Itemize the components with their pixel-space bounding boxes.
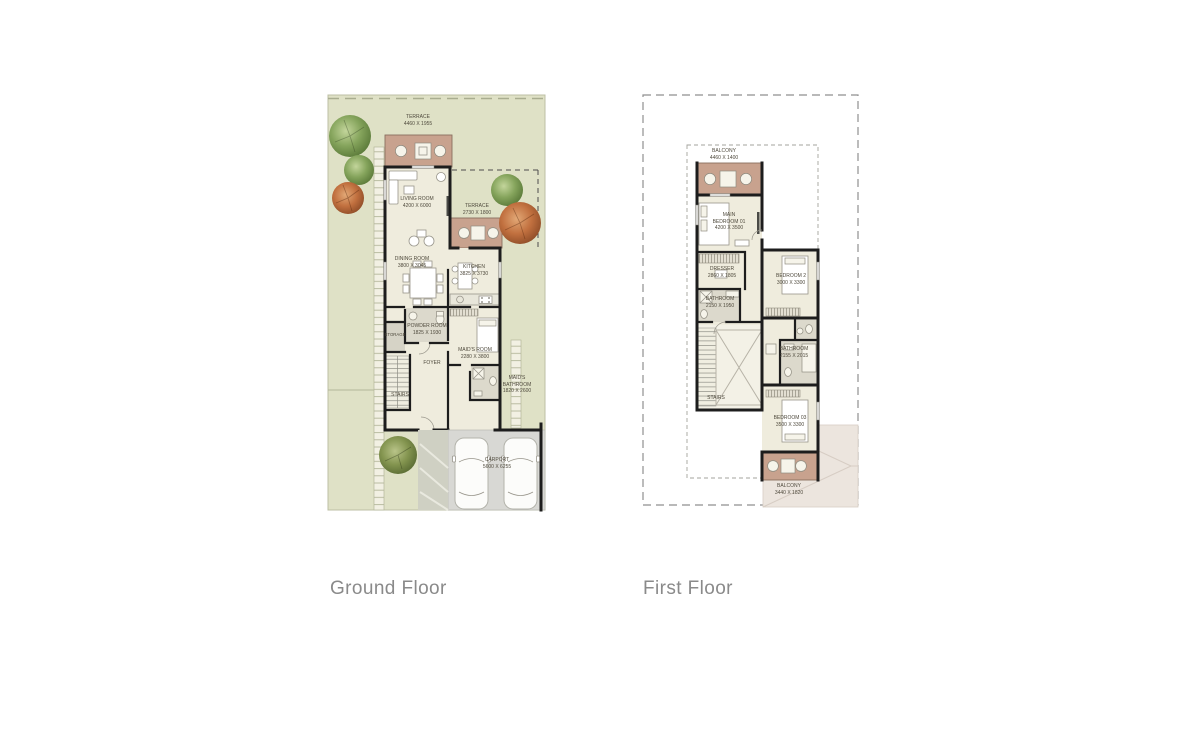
first-floor-caption: First Floor <box>643 578 733 600</box>
ground-floor-plan <box>328 95 545 510</box>
tree-icon <box>379 436 417 474</box>
room-label-balcony-top: BALCONY 4460 X 1400 <box>710 148 738 161</box>
room-name: TERRACE <box>463 203 491 210</box>
room-dims: 2280 X 3800 <box>458 354 492 361</box>
terrace-top <box>385 135 452 167</box>
ground-stairs <box>386 356 409 408</box>
tree-icon <box>329 115 371 157</box>
room-name: POWDER ROOM <box>407 323 446 330</box>
room-dims: 3800 X 3045 <box>395 263 429 270</box>
ground-floor-caption: Ground Floor <box>330 578 447 600</box>
room-dims: 2150 X 1950 <box>706 303 735 310</box>
balcony-bottom <box>762 452 818 480</box>
car-icon <box>502 438 540 509</box>
room-label-main-bedroom: MAIN BEDROOM 01 4200 X 3500 <box>713 212 746 232</box>
room-dims: 4460 X 1400 <box>710 155 738 162</box>
room-label-stairs-ground: STAIRS <box>391 392 409 399</box>
room-name: MAID'S ROOM <box>458 347 492 354</box>
room-dims: 4460 X 1955 <box>404 121 432 128</box>
first-floor-plan <box>643 95 858 507</box>
room-label-living-room: LIVING ROOM 4200 X 6000 <box>400 196 433 209</box>
room-dims: 2860 X 1805 <box>708 273 736 280</box>
carport <box>418 424 545 510</box>
room-name: STAIRS <box>391 392 409 399</box>
room-label-kitchen: KITCHEN 3825 X 3730 <box>460 264 488 277</box>
car-icon <box>453 438 491 509</box>
room-name: FOYER <box>423 360 440 367</box>
room-dims: 3825 X 3730 <box>460 271 488 278</box>
room-dims: 1820 X 2600 <box>502 388 532 395</box>
room-name: BATHROOM <box>780 346 809 353</box>
room-dims: 4200 X 6000 <box>400 203 433 210</box>
room-label-dining-room: DINING ROOM 3800 X 3045 <box>395 256 429 269</box>
room-dims: 4200 X 3500 <box>713 225 746 232</box>
room-dims: 2730 X 1800 <box>463 210 491 217</box>
room-name: BATHROOM <box>706 296 735 303</box>
room-name: TERRACE <box>404 114 432 121</box>
tree-icon <box>332 182 364 214</box>
room-label-stairs-first: STAIRS <box>707 395 725 402</box>
room-label-dresser: DRESSER 2860 X 1805 <box>708 266 736 279</box>
room-label-terrace-right: TERRACE 2730 X 1800 <box>463 203 491 216</box>
room-name: BALCONY <box>775 483 803 490</box>
room-dims: 3000 X 3300 <box>776 280 806 287</box>
tree-icon <box>491 174 523 206</box>
room-label-terrace-top: TERRACE 4460 X 1955 <box>404 114 432 127</box>
tree-icon <box>344 155 374 185</box>
room-label-maids-bathroom: MAID'S BATHROOM 1820 X 2600 <box>502 375 532 395</box>
room-label-maids-room: MAID'S ROOM 2280 X 3800 <box>458 347 492 360</box>
room-name: STORAGE <box>385 332 406 338</box>
tree-icon <box>499 202 541 244</box>
room-dims: 2155 X 2015 <box>780 353 809 360</box>
room-name: MAID'S BATHROOM <box>502 375 532 388</box>
room-label-bedroom-2: BEDROOM 2 3000 X 3300 <box>776 273 806 286</box>
room-name: LIVING ROOM <box>400 196 433 203</box>
floorplan-drawing <box>0 0 1200 733</box>
room-name: BALCONY <box>710 148 738 155</box>
room-label-balcony-bottom: BALCONY 3440 X 1820 <box>775 483 803 496</box>
room-label-powder-room: POWDER ROOM 1825 X 1930 <box>407 323 446 336</box>
room-dims: 3500 X 3300 <box>774 422 807 429</box>
room-label-carport: CARPORT 5600 X 6255 <box>483 457 511 470</box>
room-dims: 1825 X 1930 <box>407 330 446 337</box>
balcony-top <box>697 163 762 195</box>
floorplan-sheet: TERRACE 4460 X 1955 LIVING ROOM 4200 X 6… <box>0 0 1200 733</box>
room-dims: 5600 X 6255 <box>483 464 511 471</box>
room-label-storage: STORAGE <box>385 332 406 338</box>
room-name: CARPORT <box>483 457 511 464</box>
room-name: STAIRS <box>707 395 725 402</box>
room-dims: 3440 X 1820 <box>775 490 803 497</box>
room-label-foyer: FOYER <box>423 360 440 367</box>
room-name: DRESSER <box>708 266 736 273</box>
terrace-right <box>450 218 502 248</box>
room-name: BEDROOM 2 <box>776 273 806 280</box>
room-label-bathroom-2: BATHROOM 2155 X 2015 <box>780 346 809 359</box>
room-name: DINING ROOM <box>395 256 429 263</box>
room-label-bedroom-3: BEDROOM 03 3500 X 3300 <box>774 415 807 428</box>
room-name: KITCHEN <box>460 264 488 271</box>
room-name: BEDROOM 03 <box>774 415 807 422</box>
room-label-bathroom-1: BATHROOM 2150 X 1950 <box>706 296 735 309</box>
room-name: MAIN BEDROOM 01 <box>713 212 746 225</box>
